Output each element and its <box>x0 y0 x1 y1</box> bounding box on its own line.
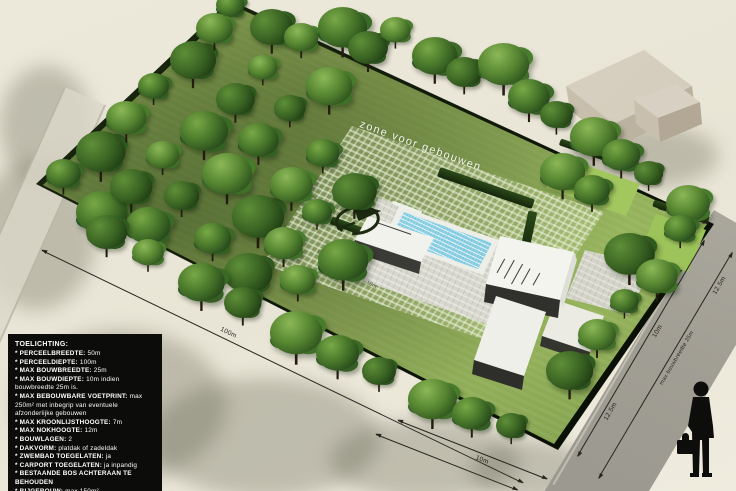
tree-canopy <box>380 17 411 42</box>
legend-item: * BOUWLAGEN: 2 <box>15 436 155 445</box>
tree-canopy <box>138 73 169 99</box>
tree-canopy <box>664 215 696 242</box>
tree-canopy <box>270 167 313 202</box>
tree-canopy <box>332 173 377 210</box>
tree-canopy <box>636 259 678 293</box>
tree-canopy <box>46 159 81 188</box>
tree-canopy <box>274 95 306 121</box>
tree-canopy <box>602 139 640 171</box>
tree-canopy <box>306 139 340 167</box>
tree-canopy <box>452 397 492 430</box>
tree-canopy <box>248 55 278 79</box>
tree-canopy <box>164 181 199 210</box>
legend: TOELICHTING: * PERCEELBREEDTE: 50m* PERC… <box>8 334 162 491</box>
tree-canopy <box>264 227 303 259</box>
tree-canopy <box>540 101 573 128</box>
tree-canopy <box>132 239 164 265</box>
tree-canopy <box>280 265 316 294</box>
legend-item: * MAX BOUWBREEDTE: 25m <box>15 367 155 376</box>
legend-item: * CARPORT TOEGELATEN: ja inpandig <box>15 462 155 471</box>
tree-canopy <box>216 83 255 115</box>
tree-canopy <box>306 67 352 105</box>
tree-canopy <box>270 311 322 354</box>
tree-canopy <box>86 215 127 249</box>
tree-canopy <box>362 357 396 385</box>
tree-canopy <box>110 169 152 204</box>
tree-canopy <box>106 101 146 134</box>
legend-item: * ZWEMBAD TOEGELATEN: ja <box>15 453 155 462</box>
site-plan-canvas: Essensteenweg zone voor g <box>0 0 736 491</box>
tree-canopy <box>178 263 225 302</box>
tree-canopy <box>196 13 233 43</box>
legend-item: * PERCEELDIEPTE: 100m <box>15 359 155 368</box>
tree-canopy <box>194 223 231 254</box>
tree-canopy <box>238 123 279 157</box>
tree-canopy <box>76 131 126 172</box>
legend-title: TOELICHTING: <box>15 341 155 348</box>
tree-canopy <box>302 199 332 224</box>
legend-item: * DAKVORM: platdak of zadeldak <box>15 445 155 454</box>
legend-item: * PERCEELBREEDTE: 50m <box>15 350 155 359</box>
tree-canopy <box>634 161 663 185</box>
legend-item: * MAX NOKHOOGTE: 12m <box>15 427 155 436</box>
tree-canopy <box>446 57 482 87</box>
tree-canopy <box>316 335 359 371</box>
tree-canopy <box>578 319 616 350</box>
person-silhouette-icon <box>674 380 726 482</box>
legend-item: * MAX BEBOUWBARE VOETPRINT: max 250m² me… <box>15 393 155 419</box>
tree-canopy <box>546 351 593 390</box>
tree-canopy <box>318 239 368 281</box>
tree-canopy <box>146 141 179 168</box>
legend-items: * PERCEELBREEDTE: 50m* PERCEELDIEPTE: 10… <box>15 350 155 491</box>
tree-canopy <box>610 289 639 313</box>
dimension-label: 100m <box>219 326 238 340</box>
legend-item: * BESTAANDE BOS ACHTERAAN TE BEHOUDEN <box>15 470 155 487</box>
tree-canopy <box>496 413 526 438</box>
tree-canopy <box>284 23 318 51</box>
legend-item: * BIJGEBOUW: max 150m² <box>15 488 155 491</box>
legend-item: * MAX BOUWDIEPTE: 10m indien bouwbreedte… <box>15 376 155 393</box>
tree-canopy <box>202 153 252 194</box>
tree-canopy <box>408 379 457 419</box>
tree-canopy <box>180 111 228 151</box>
tree-canopy <box>170 41 216 79</box>
tree-canopy <box>224 287 262 318</box>
tree-canopy <box>574 175 610 205</box>
legend-item: * MAX KROONLIJSTHOOGTE: 7m <box>15 419 155 428</box>
